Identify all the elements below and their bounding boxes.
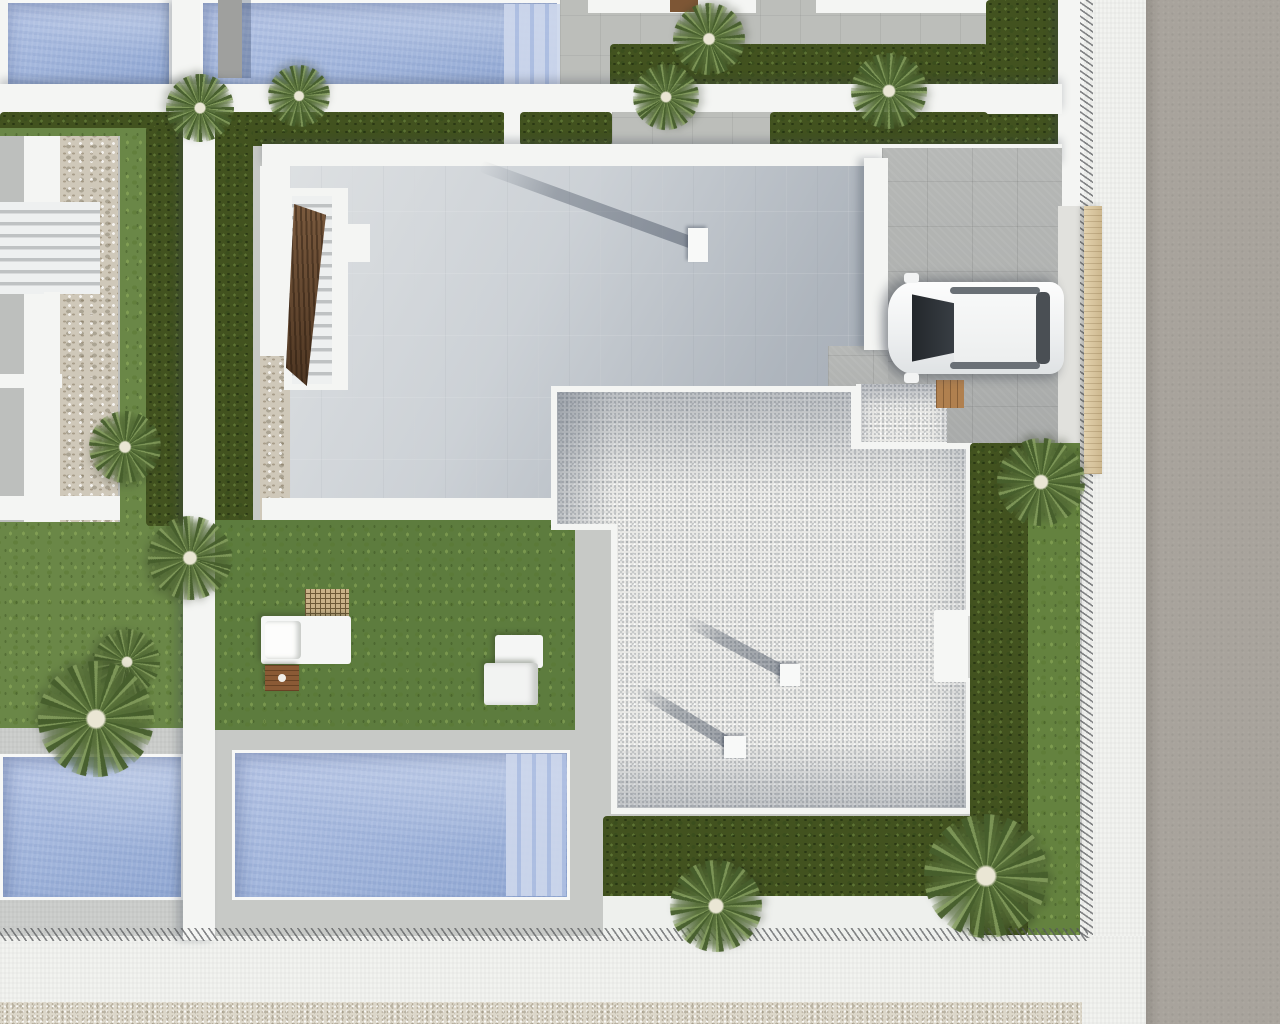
hedge-row-north-b xyxy=(520,112,612,146)
car-rear-window xyxy=(1036,292,1050,364)
daybed-cushion xyxy=(265,621,301,659)
pool-lower-left xyxy=(0,754,184,900)
driveway-gate-panel xyxy=(1084,206,1102,474)
left-villa-partition-2 xyxy=(44,292,60,376)
car-mirror-left xyxy=(904,273,919,283)
pool-pillar xyxy=(218,0,242,78)
plot-divider-wall xyxy=(183,94,215,940)
entry-door-mat xyxy=(936,380,964,408)
aerial-render xyxy=(0,0,1280,1024)
gravel-patch-small xyxy=(856,384,947,447)
gravel-verge-bottom xyxy=(0,1002,1082,1024)
left-villa-south-band xyxy=(0,496,120,520)
terrace-south-parapet xyxy=(262,498,562,522)
terrace-driveway-wall xyxy=(864,158,888,350)
table-plate xyxy=(278,674,286,682)
hedge-column-right xyxy=(970,443,1028,935)
car-side-window-top xyxy=(950,287,1040,294)
pool-upper-steps xyxy=(504,4,560,94)
lounge-chair-b xyxy=(484,663,538,705)
car-mirror-right xyxy=(904,373,919,383)
boundary-wall-horizontal xyxy=(0,84,1062,114)
garden-side-table xyxy=(265,665,299,691)
road xyxy=(1146,0,1280,1024)
left-villa-stairs xyxy=(0,202,100,294)
wall-between-upper-pools xyxy=(172,0,200,94)
car-roof xyxy=(954,290,1040,366)
roof-side-inset xyxy=(934,610,972,682)
upper-villa-roof-slab-2 xyxy=(816,0,988,13)
pool-upper-left xyxy=(0,0,172,88)
stairwell-landing xyxy=(346,224,370,262)
pergola-lattice xyxy=(305,589,349,619)
pool-pillar-shadow xyxy=(242,0,251,78)
hedge-column-right-of-wall xyxy=(215,126,253,526)
pool-edge-strip xyxy=(0,0,8,88)
car xyxy=(888,282,1064,374)
left-villa-partition-1 xyxy=(0,374,62,388)
left-villa-stone-wall xyxy=(60,136,118,522)
fence-line-bottom xyxy=(0,928,1088,941)
lawn-strip-right xyxy=(1028,443,1080,935)
hedge-column-left-of-wall xyxy=(146,126,184,526)
car-side-window-bottom xyxy=(950,362,1040,369)
upper-villa-table xyxy=(670,0,698,12)
